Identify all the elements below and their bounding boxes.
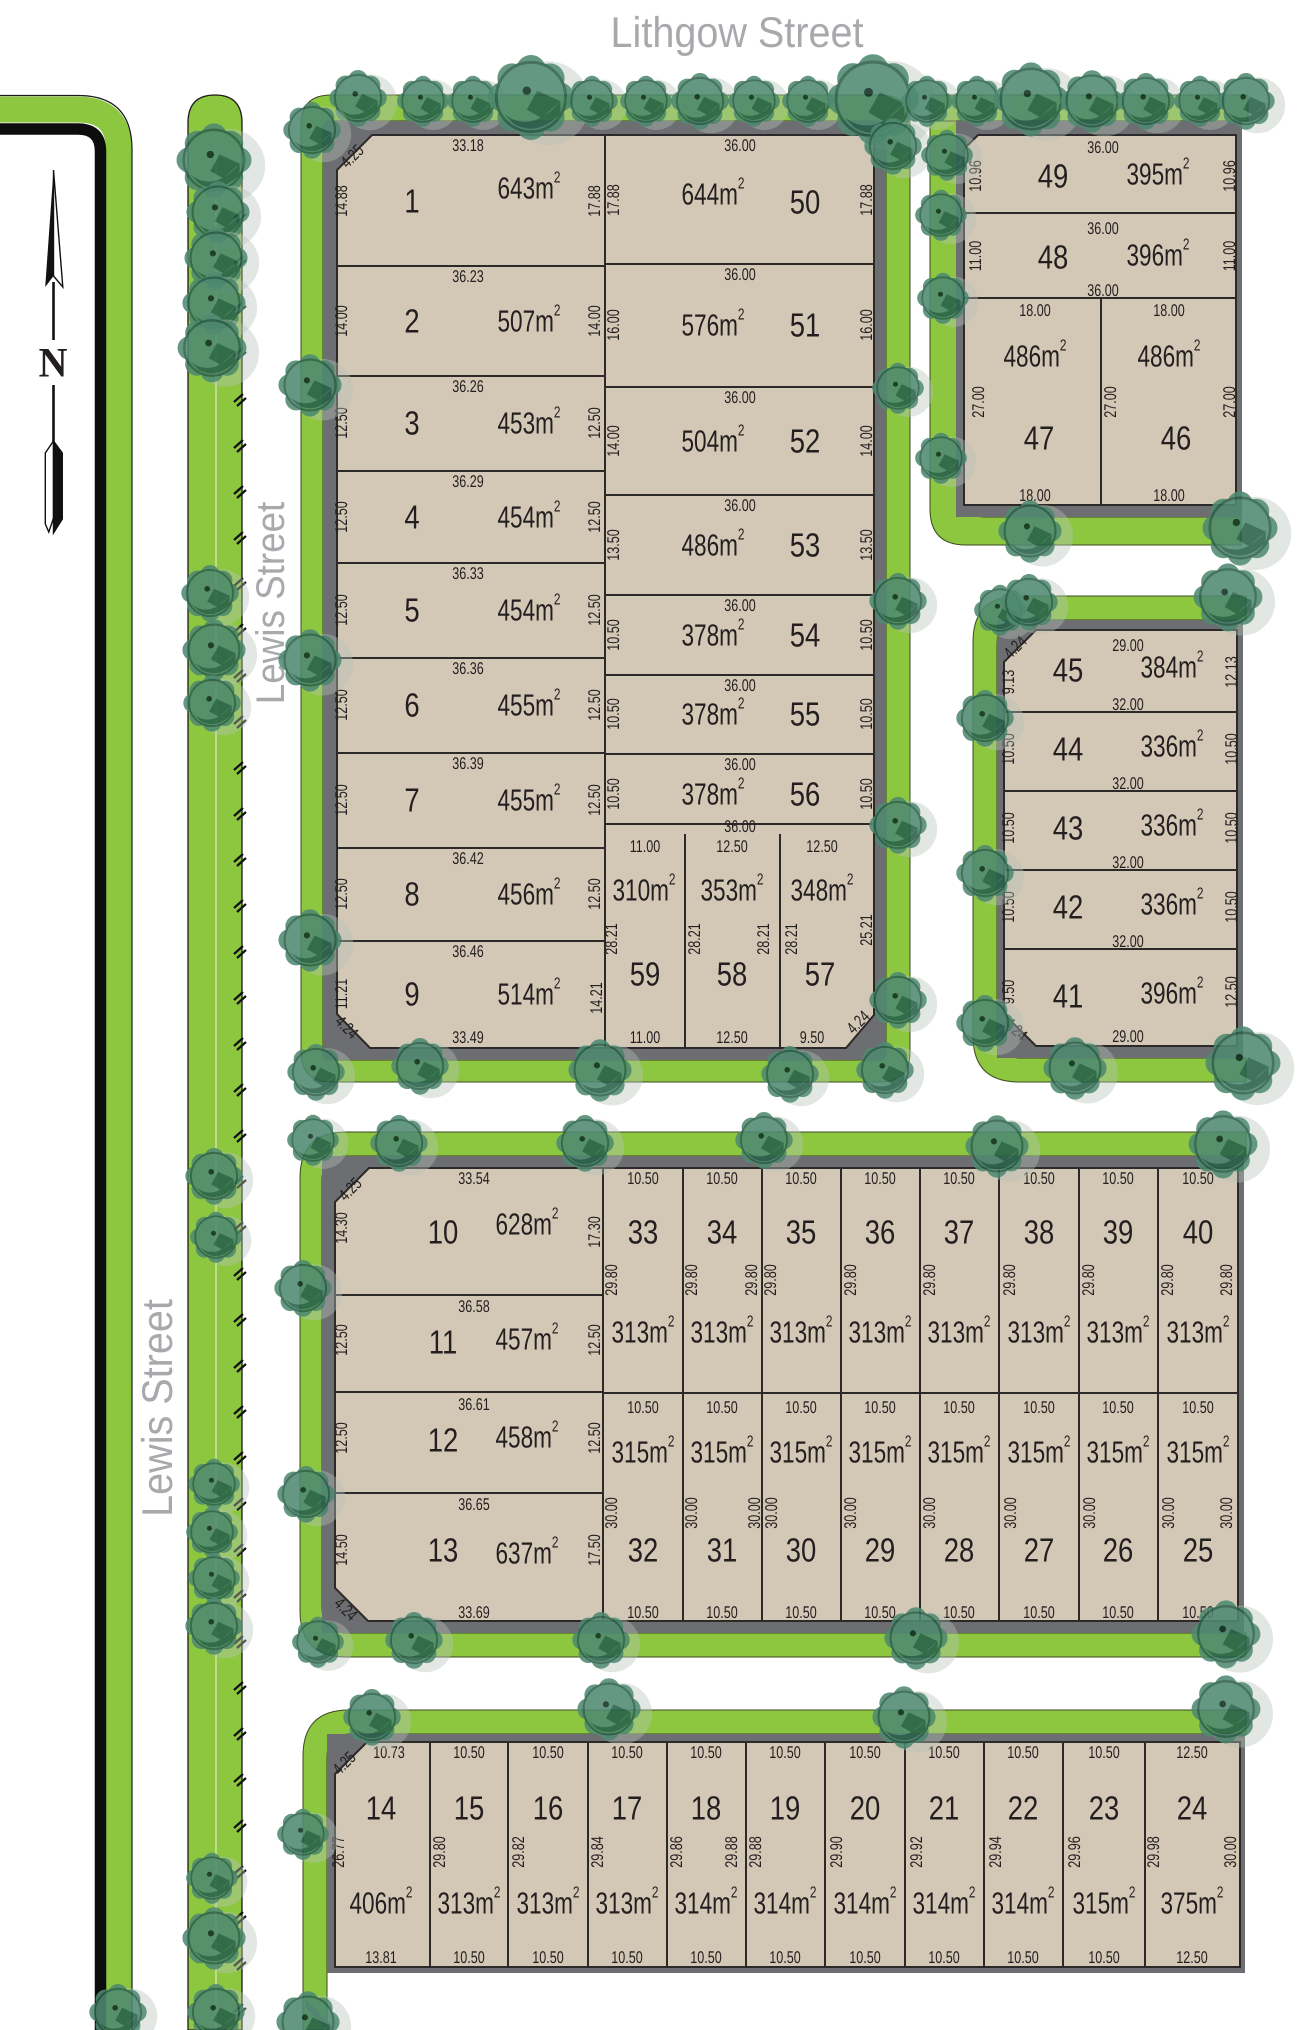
- svg-text:12.50: 12.50: [585, 689, 604, 720]
- svg-text:315m2: 315m2: [1072, 1885, 1135, 1921]
- svg-text:37: 37: [944, 1215, 975, 1252]
- svg-text:29.80: 29.80: [602, 1264, 621, 1295]
- svg-text:17.88: 17.88: [857, 184, 876, 215]
- svg-text:29.82: 29.82: [509, 1836, 528, 1867]
- svg-text:10.50: 10.50: [611, 1743, 642, 1762]
- svg-text:315m2: 315m2: [611, 1434, 674, 1470]
- svg-text:50: 50: [790, 185, 821, 222]
- svg-text:29.86: 29.86: [667, 1836, 686, 1867]
- svg-text:12.50: 12.50: [585, 784, 604, 815]
- svg-text:12.50: 12.50: [716, 837, 747, 856]
- svg-text:36.29: 36.29: [452, 472, 483, 491]
- svg-text:353m2: 353m2: [700, 872, 763, 908]
- svg-text:36.42: 36.42: [452, 849, 483, 868]
- svg-text:27.00: 27.00: [1101, 386, 1120, 417]
- svg-text:44: 44: [1053, 732, 1084, 769]
- svg-text:17.50: 17.50: [585, 1534, 604, 1565]
- svg-text:32.00: 32.00: [1112, 932, 1143, 951]
- svg-text:313m2: 313m2: [437, 1885, 500, 1921]
- svg-text:36.46: 36.46: [452, 942, 483, 961]
- svg-text:628m2: 628m2: [495, 1206, 558, 1242]
- svg-text:36.65: 36.65: [458, 1495, 489, 1514]
- svg-text:10.50: 10.50: [532, 1743, 563, 1762]
- svg-text:39: 39: [1103, 1215, 1134, 1252]
- svg-text:18.00: 18.00: [1153, 486, 1184, 505]
- svg-text:12: 12: [428, 1423, 459, 1460]
- svg-text:19: 19: [770, 1791, 801, 1828]
- svg-text:315m2: 315m2: [927, 1434, 990, 1470]
- svg-text:12.50: 12.50: [585, 501, 604, 532]
- svg-text:33.54: 33.54: [458, 1169, 489, 1188]
- svg-text:36.00: 36.00: [724, 136, 755, 155]
- svg-text:10.50: 10.50: [604, 778, 623, 809]
- svg-text:504m2: 504m2: [681, 423, 744, 459]
- svg-text:40: 40: [1183, 1215, 1214, 1252]
- svg-text:Lewis Street: Lewis Street: [134, 1299, 182, 1517]
- svg-text:29.80: 29.80: [682, 1264, 701, 1295]
- svg-text:10.50: 10.50: [627, 1603, 658, 1622]
- svg-text:310m2: 310m2: [612, 872, 675, 908]
- svg-text:28.21: 28.21: [685, 923, 704, 954]
- svg-text:14.50: 14.50: [332, 1534, 351, 1565]
- svg-text:10.50: 10.50: [1088, 1743, 1119, 1762]
- svg-text:10.50: 10.50: [604, 619, 623, 650]
- svg-text:27: 27: [1024, 1533, 1055, 1570]
- svg-text:10.50: 10.50: [1023, 1603, 1054, 1622]
- svg-text:10.50: 10.50: [1007, 1948, 1038, 1967]
- svg-text:10.50: 10.50: [999, 812, 1018, 843]
- svg-text:30.00: 30.00: [1080, 1497, 1099, 1528]
- svg-text:29.80: 29.80: [1217, 1264, 1236, 1295]
- svg-text:30.00: 30.00: [841, 1497, 860, 1528]
- svg-text:29.80: 29.80: [761, 1264, 780, 1295]
- svg-text:N: N: [39, 341, 68, 387]
- svg-text:33.49: 33.49: [452, 1028, 483, 1047]
- svg-text:315m2: 315m2: [690, 1434, 753, 1470]
- svg-text:10.50: 10.50: [1102, 1398, 1133, 1417]
- svg-text:30: 30: [786, 1533, 817, 1570]
- svg-text:29.80: 29.80: [430, 1836, 449, 1867]
- svg-text:58: 58: [717, 957, 748, 994]
- svg-text:36.26: 36.26: [452, 377, 483, 396]
- svg-text:313m2: 313m2: [1166, 1314, 1229, 1350]
- svg-text:51: 51: [790, 308, 821, 345]
- svg-text:10.50: 10.50: [864, 1603, 895, 1622]
- svg-text:8: 8: [404, 877, 419, 914]
- svg-text:315m2: 315m2: [769, 1434, 832, 1470]
- svg-text:29.80: 29.80: [1000, 1264, 1019, 1295]
- svg-text:13.81: 13.81: [365, 1948, 396, 1967]
- svg-text:30.00: 30.00: [602, 1497, 621, 1528]
- svg-text:12.50: 12.50: [332, 594, 351, 625]
- svg-text:20: 20: [850, 1791, 881, 1828]
- svg-text:507m2: 507m2: [497, 303, 560, 339]
- svg-text:10.50: 10.50: [1222, 891, 1241, 922]
- svg-text:21: 21: [929, 1791, 960, 1828]
- svg-text:33: 33: [628, 1215, 659, 1252]
- svg-text:23: 23: [1089, 1791, 1120, 1828]
- svg-text:375m2: 375m2: [1160, 1885, 1223, 1921]
- svg-text:47: 47: [1024, 421, 1055, 458]
- svg-text:315m2: 315m2: [1166, 1434, 1229, 1470]
- svg-text:42: 42: [1053, 890, 1084, 927]
- svg-text:31: 31: [707, 1533, 738, 1570]
- svg-text:1: 1: [404, 184, 419, 221]
- svg-text:29.88: 29.88: [746, 1836, 765, 1867]
- svg-text:313m2: 313m2: [611, 1314, 674, 1350]
- svg-text:314m2: 314m2: [753, 1885, 816, 1921]
- svg-text:12.50: 12.50: [585, 1422, 604, 1453]
- svg-text:28.21: 28.21: [754, 923, 773, 954]
- svg-text:13.50: 13.50: [604, 529, 623, 560]
- svg-text:54: 54: [790, 618, 821, 655]
- svg-text:10.50: 10.50: [453, 1743, 484, 1762]
- svg-text:36.00: 36.00: [1087, 219, 1118, 238]
- svg-text:34: 34: [707, 1215, 738, 1252]
- svg-text:456m2: 456m2: [497, 876, 560, 912]
- svg-text:29.84: 29.84: [588, 1836, 607, 1867]
- svg-text:28: 28: [944, 1533, 975, 1570]
- svg-text:378m2: 378m2: [681, 696, 744, 732]
- svg-text:14.21: 14.21: [587, 982, 606, 1013]
- svg-text:29.80: 29.80: [1158, 1264, 1177, 1295]
- svg-text:57: 57: [805, 957, 836, 994]
- svg-text:315m2: 315m2: [1086, 1434, 1149, 1470]
- svg-text:486m2: 486m2: [1137, 338, 1200, 374]
- svg-text:12.50: 12.50: [585, 407, 604, 438]
- svg-text:14.88: 14.88: [332, 185, 351, 216]
- svg-text:313m2: 313m2: [927, 1314, 990, 1350]
- svg-text:22: 22: [1008, 1791, 1039, 1828]
- svg-text:315m2: 315m2: [848, 1434, 911, 1470]
- svg-text:26: 26: [1103, 1533, 1134, 1570]
- svg-text:10.50: 10.50: [532, 1948, 563, 1967]
- svg-text:10.50: 10.50: [857, 778, 876, 809]
- svg-text:9.50: 9.50: [800, 1028, 824, 1047]
- svg-text:455m2: 455m2: [497, 782, 560, 818]
- svg-text:10.50: 10.50: [706, 1603, 737, 1622]
- svg-text:29.80: 29.80: [1079, 1264, 1098, 1295]
- svg-text:41: 41: [1053, 979, 1084, 1016]
- svg-text:314m2: 314m2: [912, 1885, 975, 1921]
- svg-text:9: 9: [404, 977, 419, 1014]
- svg-text:11.00: 11.00: [966, 241, 985, 272]
- svg-text:36.58: 36.58: [458, 1297, 489, 1316]
- svg-text:10.50: 10.50: [943, 1398, 974, 1417]
- svg-text:36.00: 36.00: [724, 817, 755, 836]
- svg-text:17.88: 17.88: [604, 184, 623, 215]
- svg-text:10.50: 10.50: [785, 1169, 816, 1188]
- svg-text:28.21: 28.21: [782, 923, 801, 954]
- svg-text:10.50: 10.50: [785, 1603, 816, 1622]
- svg-text:13.50: 13.50: [857, 529, 876, 560]
- svg-text:314m2: 314m2: [674, 1885, 737, 1921]
- svg-text:10.50: 10.50: [1182, 1398, 1213, 1417]
- svg-text:6: 6: [404, 688, 419, 725]
- svg-text:49: 49: [1038, 159, 1069, 196]
- svg-text:33.69: 33.69: [458, 1603, 489, 1622]
- svg-text:384m2: 384m2: [1140, 649, 1203, 685]
- svg-text:16.00: 16.00: [604, 309, 623, 340]
- svg-text:396m2: 396m2: [1126, 237, 1189, 273]
- svg-text:29.94: 29.94: [986, 1836, 1005, 1867]
- svg-text:35: 35: [786, 1215, 817, 1252]
- svg-text:2: 2: [404, 304, 419, 341]
- svg-text:10.50: 10.50: [849, 1948, 880, 1967]
- svg-text:486m2: 486m2: [1003, 338, 1066, 374]
- svg-text:315m2: 315m2: [1007, 1434, 1070, 1470]
- svg-text:10.50: 10.50: [1088, 1948, 1119, 1967]
- svg-text:30.00: 30.00: [1001, 1497, 1020, 1528]
- svg-text:29: 29: [865, 1533, 896, 1570]
- svg-text:10.50: 10.50: [769, 1948, 800, 1967]
- svg-text:29.88: 29.88: [722, 1836, 741, 1867]
- svg-text:52: 52: [790, 424, 821, 461]
- svg-text:17: 17: [612, 1791, 643, 1828]
- svg-text:12.50: 12.50: [1176, 1743, 1207, 1762]
- svg-text:11.21: 11.21: [332, 979, 351, 1010]
- svg-text:644m2: 644m2: [681, 176, 744, 212]
- svg-text:56: 56: [790, 777, 821, 814]
- svg-text:36.00: 36.00: [1087, 281, 1118, 300]
- svg-text:406m2: 406m2: [349, 1885, 412, 1921]
- svg-text:59: 59: [630, 957, 661, 994]
- svg-text:12.50: 12.50: [332, 878, 351, 909]
- svg-text:313m2: 313m2: [769, 1314, 832, 1350]
- svg-text:16: 16: [533, 1791, 564, 1828]
- svg-text:643m2: 643m2: [497, 170, 560, 206]
- svg-text:29.00: 29.00: [1112, 1027, 1143, 1046]
- svg-text:29.80: 29.80: [920, 1264, 939, 1295]
- svg-text:36.36: 36.36: [452, 659, 483, 678]
- svg-text:10.50: 10.50: [1102, 1169, 1133, 1188]
- svg-text:10.50: 10.50: [1222, 812, 1241, 843]
- svg-text:10.50: 10.50: [1182, 1169, 1213, 1188]
- svg-text:25.21: 25.21: [857, 914, 876, 945]
- svg-text:10.50: 10.50: [1007, 1743, 1038, 1762]
- svg-text:17.88: 17.88: [585, 185, 604, 216]
- svg-text:28.21: 28.21: [602, 923, 621, 954]
- svg-text:12.50: 12.50: [332, 1324, 351, 1355]
- svg-text:32: 32: [628, 1533, 659, 1570]
- svg-text:30.00: 30.00: [682, 1497, 701, 1528]
- svg-text:314m2: 314m2: [991, 1885, 1054, 1921]
- svg-text:313m2: 313m2: [516, 1885, 579, 1921]
- svg-text:10.50: 10.50: [928, 1948, 959, 1967]
- svg-text:45: 45: [1053, 653, 1084, 690]
- svg-text:10.50: 10.50: [1023, 1398, 1054, 1417]
- svg-text:12.50: 12.50: [585, 1324, 604, 1355]
- svg-text:36.00: 36.00: [724, 496, 755, 515]
- svg-text:29.90: 29.90: [827, 1836, 846, 1867]
- svg-text:29.00: 29.00: [1112, 636, 1143, 655]
- svg-text:12.50: 12.50: [1176, 1948, 1207, 1967]
- svg-text:313m2: 313m2: [848, 1314, 911, 1350]
- svg-text:25: 25: [1183, 1533, 1214, 1570]
- svg-text:30.00: 30.00: [1159, 1497, 1178, 1528]
- svg-text:14: 14: [366, 1791, 397, 1828]
- svg-text:10.50: 10.50: [849, 1743, 880, 1762]
- svg-text:14.00: 14.00: [857, 425, 876, 456]
- svg-text:27.00: 27.00: [969, 386, 988, 417]
- svg-text:14.00: 14.00: [332, 305, 351, 336]
- svg-text:10.50: 10.50: [627, 1169, 658, 1188]
- svg-text:36.23: 36.23: [452, 267, 483, 286]
- svg-text:18: 18: [691, 1791, 722, 1828]
- svg-text:576m2: 576m2: [681, 307, 744, 343]
- svg-text:336m2: 336m2: [1140, 807, 1203, 843]
- svg-text:10.50: 10.50: [453, 1948, 484, 1967]
- svg-text:32.00: 32.00: [1112, 695, 1143, 714]
- svg-text:12.50: 12.50: [332, 1422, 351, 1453]
- svg-text:12.50: 12.50: [332, 689, 351, 720]
- svg-text:12.13: 12.13: [1222, 656, 1241, 687]
- svg-text:29.80: 29.80: [841, 1264, 860, 1295]
- svg-text:29.80: 29.80: [742, 1264, 761, 1295]
- svg-text:14.30: 14.30: [332, 1212, 351, 1243]
- svg-text:454m2: 454m2: [497, 499, 560, 535]
- svg-text:12.50: 12.50: [1222, 976, 1241, 1007]
- svg-text:12.50: 12.50: [585, 594, 604, 625]
- svg-text:10.50: 10.50: [604, 698, 623, 729]
- svg-text:378m2: 378m2: [681, 617, 744, 653]
- svg-text:10.50: 10.50: [943, 1169, 974, 1188]
- svg-text:38: 38: [1024, 1215, 1055, 1252]
- svg-text:4: 4: [404, 500, 419, 537]
- svg-text:30.00: 30.00: [920, 1497, 939, 1528]
- svg-text:10.50: 10.50: [1102, 1603, 1133, 1622]
- svg-text:486m2: 486m2: [681, 527, 744, 563]
- svg-text:30.00: 30.00: [1217, 1497, 1236, 1528]
- svg-text:36.00: 36.00: [724, 755, 755, 774]
- svg-text:30.00: 30.00: [762, 1497, 781, 1528]
- svg-text:53: 53: [790, 528, 821, 565]
- svg-text:36: 36: [865, 1215, 896, 1252]
- svg-text:36.61: 36.61: [458, 1395, 489, 1414]
- svg-text:314m2: 314m2: [833, 1885, 896, 1921]
- svg-text:10.50: 10.50: [864, 1398, 895, 1417]
- svg-text:36.00: 36.00: [1087, 138, 1118, 157]
- svg-text:24: 24: [1177, 1791, 1208, 1828]
- svg-text:458m2: 458m2: [495, 1419, 558, 1455]
- svg-text:10.50: 10.50: [769, 1743, 800, 1762]
- svg-text:10.50: 10.50: [690, 1743, 721, 1762]
- svg-text:13: 13: [428, 1533, 459, 1570]
- svg-text:30.00: 30.00: [1221, 1836, 1240, 1867]
- svg-text:3: 3: [404, 406, 419, 443]
- svg-text:36.00: 36.00: [724, 265, 755, 284]
- svg-text:10.50: 10.50: [706, 1169, 737, 1188]
- svg-text:12.50: 12.50: [806, 837, 837, 856]
- svg-text:29.98: 29.98: [1144, 1836, 1163, 1867]
- svg-text:46: 46: [1161, 421, 1192, 458]
- svg-text:10.96: 10.96: [1220, 160, 1239, 191]
- svg-text:29.92: 29.92: [907, 1836, 926, 1867]
- svg-text:10.50: 10.50: [1222, 733, 1241, 764]
- svg-text:5: 5: [404, 593, 419, 630]
- svg-text:12.50: 12.50: [332, 784, 351, 815]
- svg-text:14.00: 14.00: [604, 425, 623, 456]
- svg-text:10.50: 10.50: [706, 1398, 737, 1417]
- svg-text:36.33: 36.33: [452, 564, 483, 583]
- svg-text:11.00: 11.00: [630, 837, 661, 856]
- svg-text:18.00: 18.00: [1019, 301, 1050, 320]
- svg-text:43: 43: [1053, 811, 1084, 848]
- svg-text:10.50: 10.50: [857, 619, 876, 650]
- svg-text:10.50: 10.50: [611, 1948, 642, 1967]
- svg-text:55: 55: [790, 697, 821, 734]
- svg-text:Lithgow Street: Lithgow Street: [611, 9, 864, 57]
- svg-text:17.30: 17.30: [585, 1216, 604, 1247]
- svg-text:313m2: 313m2: [690, 1314, 753, 1350]
- svg-text:11.00: 11.00: [630, 1028, 661, 1047]
- svg-text:454m2: 454m2: [497, 592, 560, 628]
- svg-text:396m2: 396m2: [1140, 975, 1203, 1011]
- svg-text:29.96: 29.96: [1065, 1836, 1084, 1867]
- svg-text:14.00: 14.00: [585, 305, 604, 336]
- svg-text:36.00: 36.00: [724, 388, 755, 407]
- svg-text:27.00: 27.00: [1220, 386, 1239, 417]
- svg-text:11.00: 11.00: [1220, 241, 1239, 272]
- svg-text:313m2: 313m2: [595, 1885, 658, 1921]
- svg-text:15: 15: [454, 1791, 485, 1828]
- svg-text:10.50: 10.50: [690, 1948, 721, 1967]
- svg-text:348m2: 348m2: [790, 872, 853, 908]
- svg-text:10: 10: [428, 1215, 459, 1252]
- svg-text:36.39: 36.39: [452, 754, 483, 773]
- svg-text:378m2: 378m2: [681, 776, 744, 812]
- svg-text:313m2: 313m2: [1086, 1314, 1149, 1350]
- svg-text:455m2: 455m2: [497, 687, 560, 723]
- svg-text:336m2: 336m2: [1140, 886, 1203, 922]
- svg-text:453m2: 453m2: [497, 405, 560, 441]
- svg-text:18.00: 18.00: [1153, 301, 1184, 320]
- svg-text:32.00: 32.00: [1112, 853, 1143, 872]
- svg-text:514m2: 514m2: [497, 976, 560, 1012]
- svg-text:36.00: 36.00: [724, 676, 755, 695]
- svg-text:10.50: 10.50: [857, 698, 876, 729]
- svg-text:336m2: 336m2: [1140, 728, 1203, 764]
- svg-text:32.00: 32.00: [1112, 774, 1143, 793]
- svg-text:395m2: 395m2: [1126, 156, 1189, 192]
- svg-text:12.50: 12.50: [585, 878, 604, 909]
- svg-text:16.00: 16.00: [857, 309, 876, 340]
- svg-text:457m2: 457m2: [495, 1321, 558, 1357]
- svg-text:11: 11: [429, 1325, 458, 1362]
- svg-text:313m2: 313m2: [1007, 1314, 1070, 1350]
- svg-text:33.18: 33.18: [452, 136, 483, 155]
- svg-text:48: 48: [1038, 240, 1069, 277]
- svg-text:10.50: 10.50: [627, 1398, 658, 1417]
- svg-text:10.50: 10.50: [864, 1169, 895, 1188]
- svg-text:637m2: 637m2: [495, 1535, 558, 1571]
- svg-text:36.00: 36.00: [724, 596, 755, 615]
- svg-text:10.50: 10.50: [785, 1398, 816, 1417]
- svg-text:9.13: 9.13: [999, 670, 1018, 694]
- svg-text:12.50: 12.50: [332, 501, 351, 532]
- svg-text:12.50: 12.50: [716, 1028, 747, 1047]
- svg-text:7: 7: [404, 783, 419, 820]
